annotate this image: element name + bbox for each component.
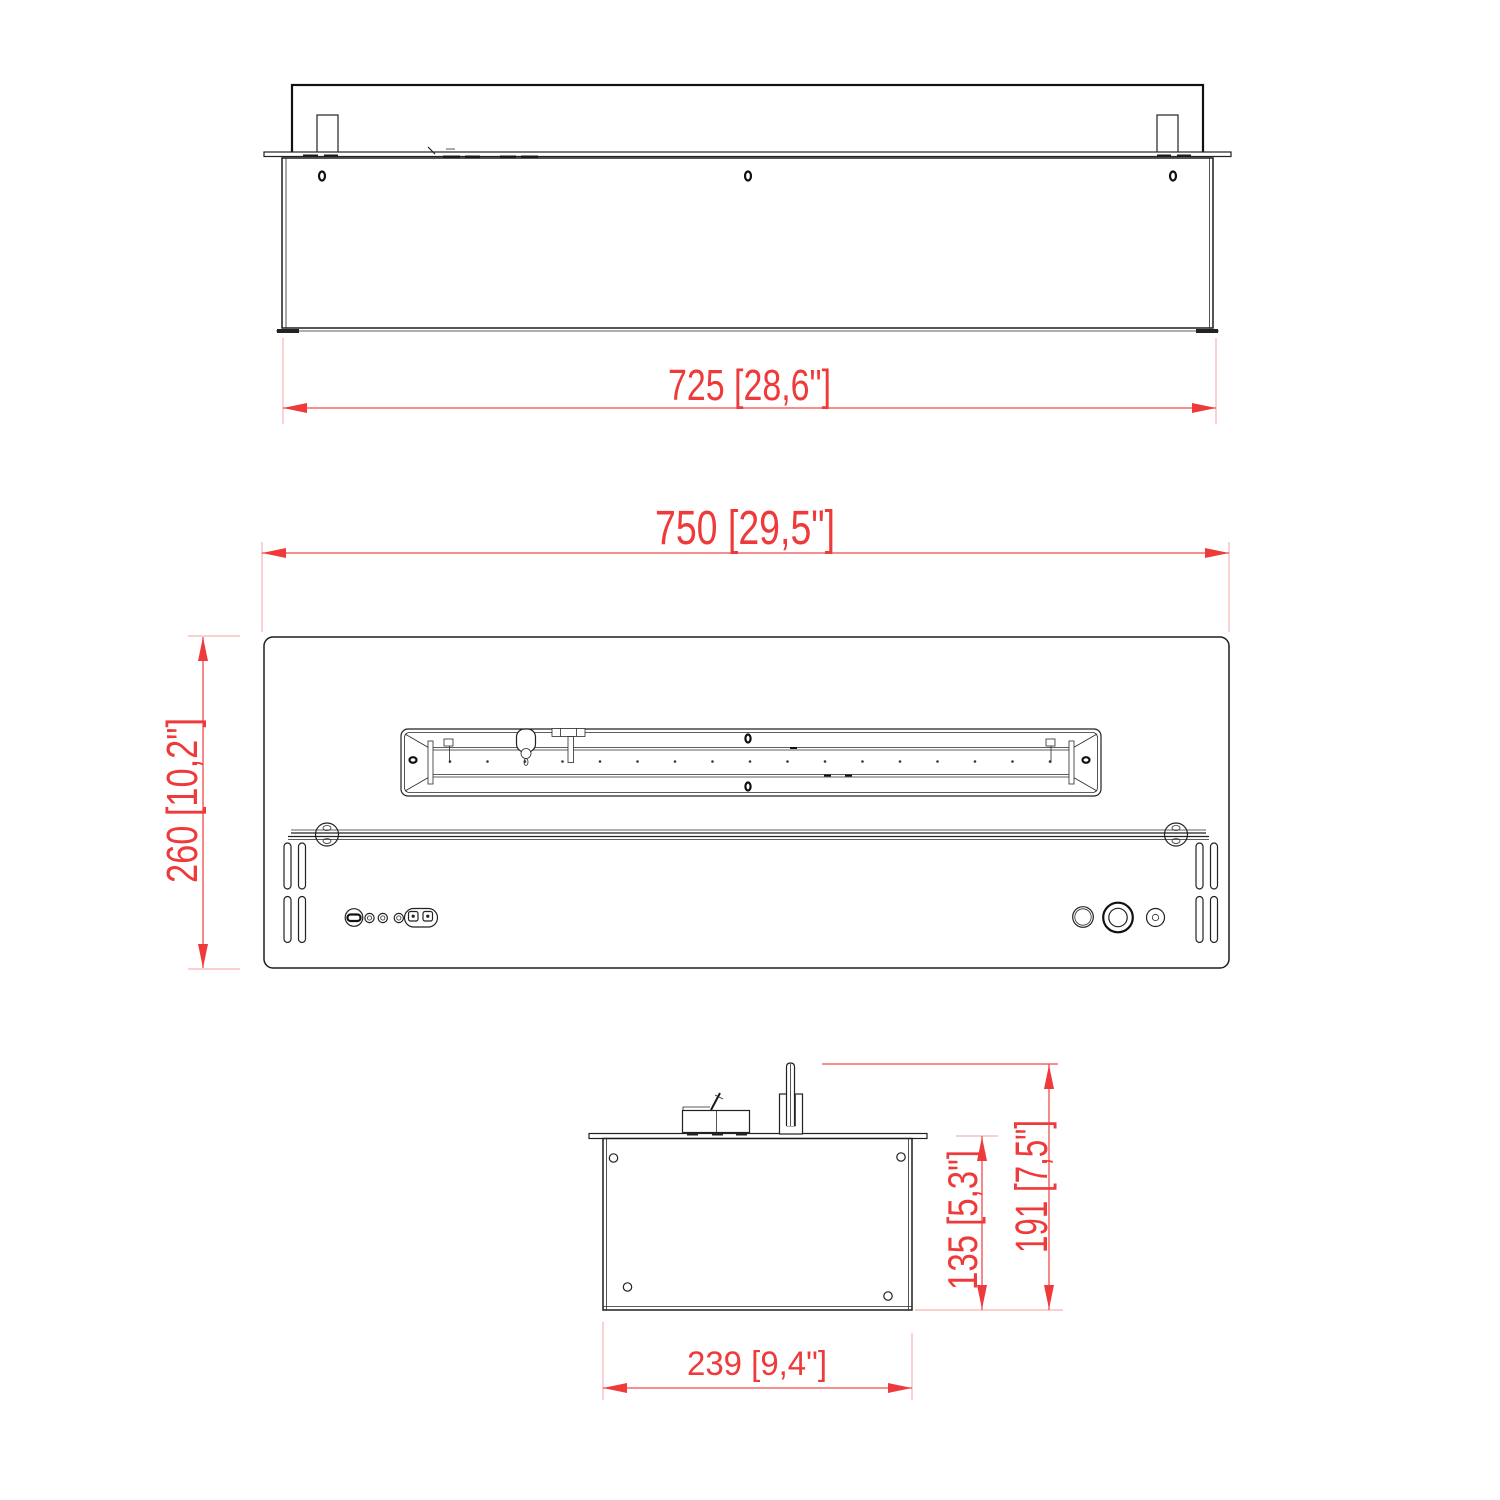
arrow-down xyxy=(1044,1285,1054,1309)
pump-body xyxy=(683,1111,750,1133)
plan-view xyxy=(264,637,1229,968)
terminal-pin xyxy=(412,915,415,918)
arrow-left xyxy=(262,548,286,558)
drawing-canvas: 725 [28,6"] 750 [29,5"] 260 [10,2"] xyxy=(0,0,1500,1500)
foot-left xyxy=(277,329,299,333)
tray-screw-bottom xyxy=(745,783,750,791)
arrow-down xyxy=(198,944,208,968)
technical-drawing-page: 725 [28,6"] 750 [29,5"] 260 [10,2"] xyxy=(0,0,1500,1500)
pump-foot xyxy=(712,1133,723,1136)
screw-slot-center xyxy=(745,172,751,181)
arrow-left xyxy=(283,403,307,413)
front-view xyxy=(264,85,1231,333)
dimension-plan-depth: 260 [10,2"] xyxy=(158,636,240,969)
side-body xyxy=(603,1139,912,1311)
dimension-label-plan-depth: 260 [10,2"] xyxy=(158,718,207,883)
tray-end-screw-right xyxy=(1083,757,1090,763)
screw-slot-left xyxy=(319,172,325,181)
foot-right xyxy=(1196,329,1218,333)
tray-bracket-right-flag xyxy=(1046,739,1055,746)
arrow-right xyxy=(1205,548,1229,558)
mounting-tab-right xyxy=(1157,115,1178,153)
dimension-label-front-width: 725 [28,6"] xyxy=(668,361,831,410)
dimension-plan-width: 750 [29,5"] xyxy=(262,502,1229,632)
dimension-front-width: 725 [28,6"] xyxy=(283,338,1216,424)
screw-slot-right xyxy=(1170,172,1176,181)
arrow-up xyxy=(198,637,208,661)
terminal-pin xyxy=(426,915,429,918)
arrow-right xyxy=(888,1383,912,1393)
mounting-bracket xyxy=(780,1063,803,1134)
t-bracket-stem xyxy=(568,737,574,763)
arrow-right xyxy=(1192,403,1216,413)
dimension-label-plan-width: 750 [29,5"] xyxy=(655,502,835,555)
arrow-left xyxy=(603,1383,627,1393)
tray-end-screw-left xyxy=(410,757,417,763)
tray-end-plate-right xyxy=(1069,741,1074,784)
burner-body-front xyxy=(282,158,1213,328)
pump-foot xyxy=(687,1133,698,1136)
pump-foot xyxy=(736,1133,747,1136)
tray-end-plate-left xyxy=(428,741,433,784)
rear-panel xyxy=(292,85,1203,153)
top-flange xyxy=(264,152,1231,157)
dimension-label-side-width: 239 [9,4"] xyxy=(687,1345,827,1383)
pump-unit xyxy=(683,1093,750,1136)
mounting-tab-left xyxy=(317,115,338,153)
t-bracket-bar xyxy=(552,729,585,737)
igniter-tip xyxy=(521,749,531,759)
dimension-side-width: 239 [9,4"] xyxy=(603,1322,912,1400)
dimension-label-side-total-height: 191 [7,5"] xyxy=(1006,1120,1057,1253)
arrow-up xyxy=(1044,1065,1054,1089)
side-view xyxy=(589,1063,927,1310)
tray-screw-top xyxy=(745,735,750,743)
tray-bracket-left-flag xyxy=(444,739,453,746)
dimension-label-side-inset-height: 135 [5,3"] xyxy=(939,1150,986,1290)
